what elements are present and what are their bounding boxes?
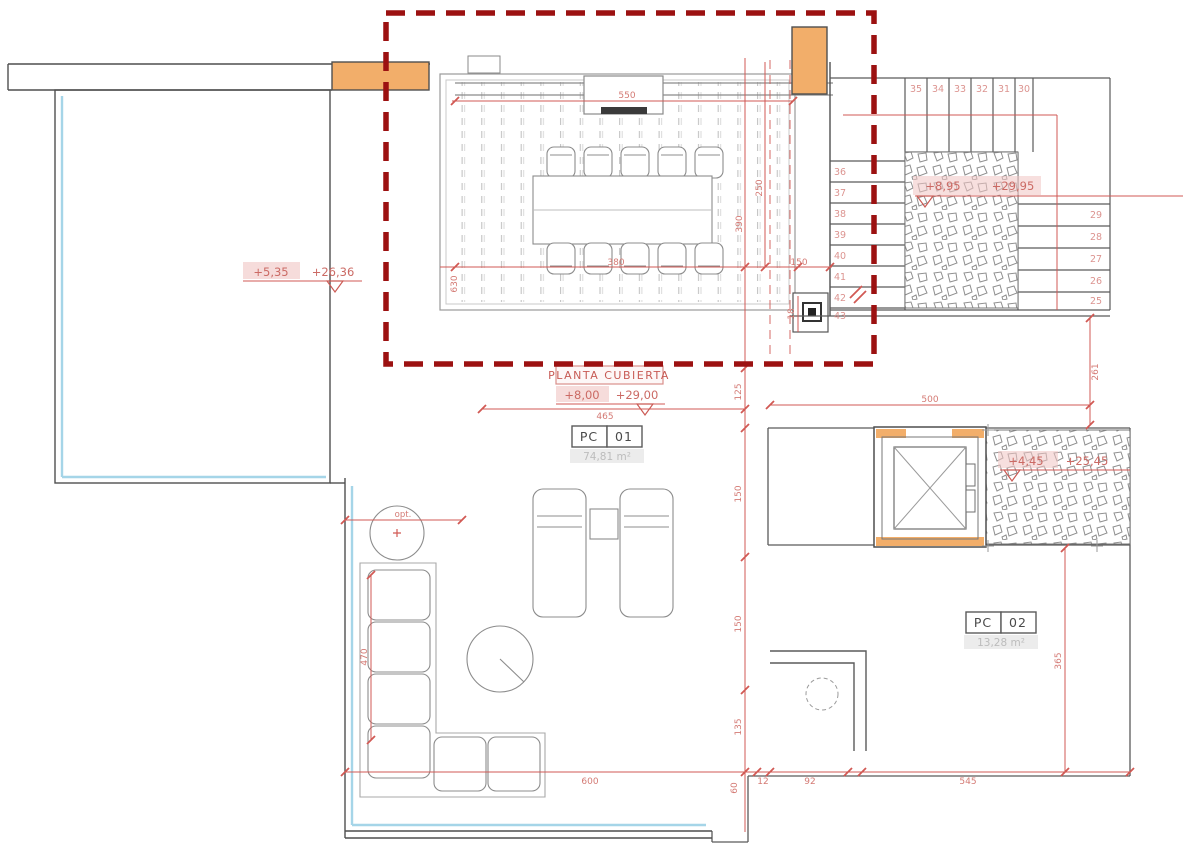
dim-seg-a: 150 xyxy=(734,485,744,502)
floor-plan-drawing: 35 34 33 32 31 30 36 37 38 39 40 41 42 4… xyxy=(0,0,1200,844)
dim-terrace-width: 465 xyxy=(596,412,613,422)
step-number: 38 xyxy=(834,209,846,220)
floor-plan-canvas: 35 34 33 32 31 30 36 37 38 39 40 41 42 4… xyxy=(0,0,1200,844)
dim-sofa-length: 470 xyxy=(360,648,370,665)
dim-bottom-main: 600 xyxy=(581,777,598,787)
dim-seg-c: 135 xyxy=(734,718,744,735)
dim-gap-a: 125 xyxy=(734,383,744,400)
step-number: 28 xyxy=(1090,232,1102,243)
dim-bottom-c: 92 xyxy=(804,777,815,787)
dim-dining-depth: 630 xyxy=(450,275,460,292)
step-number: 42 xyxy=(834,293,846,304)
dim-bottom-d: 545 xyxy=(959,777,976,787)
dim-roof-depth: 261 xyxy=(1091,363,1101,380)
step-number: 35 xyxy=(910,84,922,95)
dim-pergola-width: 550 xyxy=(618,91,635,101)
step-number: 27 xyxy=(1090,254,1102,265)
step-number: 37 xyxy=(834,188,846,199)
step-number: 36 xyxy=(834,167,846,178)
sun-lounger xyxy=(620,489,673,617)
dim-bottom-b: 12 xyxy=(757,777,768,787)
room-area: 13,28 m² xyxy=(977,637,1025,649)
plan-title: PLANTA CUBIERTA xyxy=(548,369,670,382)
top-left-wing xyxy=(8,62,430,483)
living-terrace xyxy=(345,478,712,838)
step-number: 32 xyxy=(976,84,988,95)
stair-upper-level-label: +8,95 xyxy=(925,179,960,193)
dim-seg-b: 150 xyxy=(734,615,744,632)
step-number: 39 xyxy=(834,230,846,241)
plan-level-label: +8,00 xyxy=(564,388,599,402)
room-number: 01 xyxy=(615,429,633,444)
step-number: 34 xyxy=(932,84,944,95)
step-number: 26 xyxy=(1090,276,1102,287)
room-code: PC xyxy=(974,615,992,630)
pergola-terrace xyxy=(440,27,833,332)
note-opt: opt. xyxy=(395,510,412,520)
dim-chimney-size: 18 xyxy=(787,308,797,320)
stair-hatch-lower xyxy=(986,430,1130,544)
stair-lower-elevation-label: +25,45 xyxy=(1066,454,1109,468)
step-number: 41 xyxy=(834,272,846,283)
stair-hatch-upper xyxy=(905,152,1018,308)
stair-upper-elevation-label: +29,95 xyxy=(992,179,1035,193)
dim-chimney-offset: 150 xyxy=(790,258,807,268)
step-number: 30 xyxy=(1018,84,1030,95)
plan-elevation-label: +29,00 xyxy=(616,388,659,402)
terrace-level-label: +5,35 xyxy=(253,265,288,279)
step-number: 40 xyxy=(834,251,846,262)
dim-right-depth: 365 xyxy=(1054,652,1064,669)
dim-bottom-a: 60 xyxy=(730,782,740,794)
sun-lounger xyxy=(533,489,586,617)
step-number: 31 xyxy=(998,84,1010,95)
elevator xyxy=(874,427,986,547)
step-number: 43 xyxy=(834,311,846,322)
dim-roof-width: 500 xyxy=(921,395,938,405)
drain-circle xyxy=(806,678,838,710)
dining-set xyxy=(533,147,723,274)
dim-bay-b: 390 xyxy=(735,215,745,232)
orange-wall-segment-b xyxy=(792,27,827,94)
room-tag-pc02: PC 02 13,28 m² xyxy=(964,612,1038,649)
step-number: 29 xyxy=(1090,210,1102,221)
step-number: 25 xyxy=(1090,296,1102,307)
stair-numbers-top: 35 34 33 32 31 30 xyxy=(910,84,1030,95)
elevator-zone xyxy=(712,424,1130,842)
terrace-elevation-label: +26,36 xyxy=(312,265,355,279)
step-number: 33 xyxy=(954,84,966,95)
stair-lower-level-label: +4,45 xyxy=(1008,454,1043,468)
dim-bay-a: 250 xyxy=(755,179,765,196)
room-tag-pc01: PC 01 74,81 m² xyxy=(570,426,644,463)
room-area: 74,81 m² xyxy=(583,451,631,463)
dim-dining-width: 380 xyxy=(607,258,624,268)
side-table xyxy=(590,509,618,539)
orange-wall-segment-a xyxy=(332,62,429,90)
room-number: 02 xyxy=(1009,615,1027,630)
planter-wall xyxy=(770,651,866,751)
room-code: PC xyxy=(580,429,598,444)
